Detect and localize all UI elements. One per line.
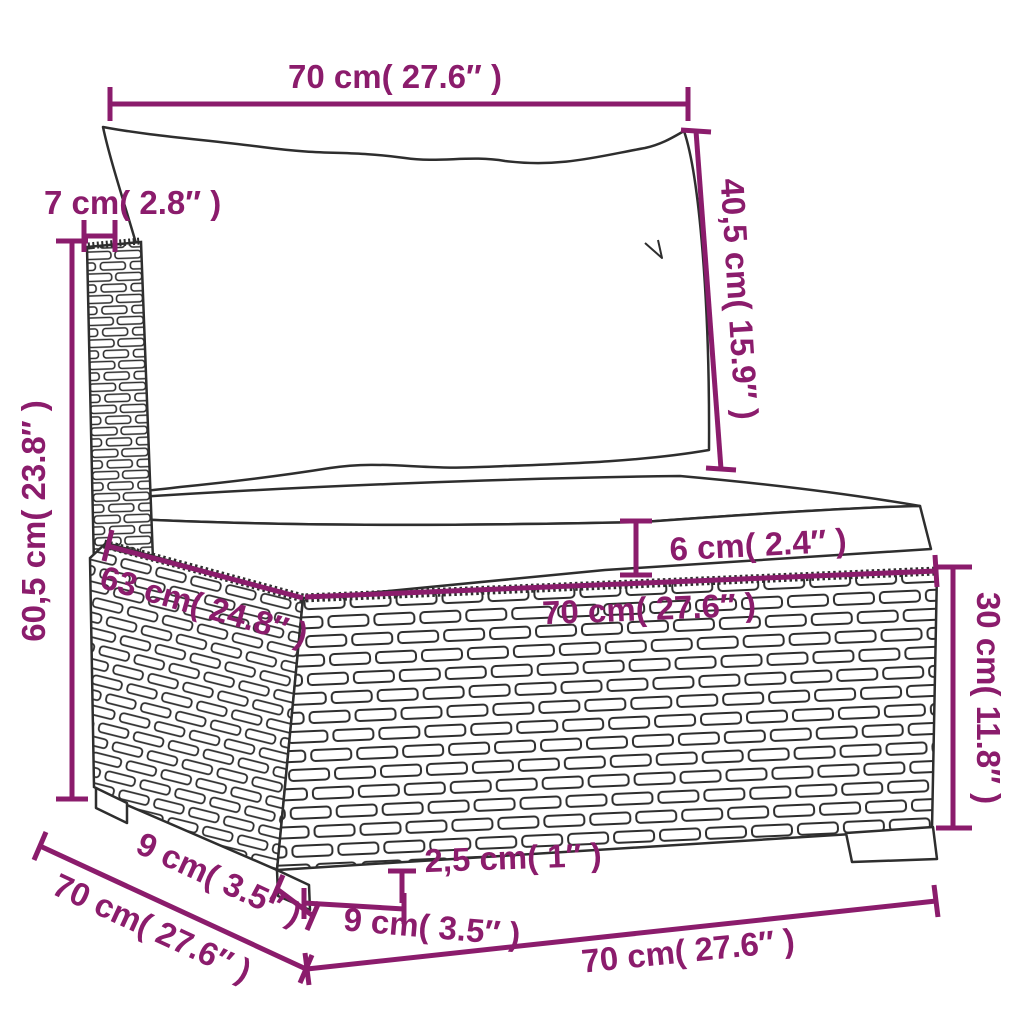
dimension-label: 7 cm( 2.8″ ) xyxy=(44,184,221,221)
dimension-label: 2,5 cm( 1″ ) xyxy=(424,836,602,879)
dimension-tick xyxy=(681,130,711,132)
dimension-label: 6 cm( 2.4″ ) xyxy=(669,521,848,567)
dimension-label: 70 cm( 27.6″ ) xyxy=(288,58,502,95)
dimension-tick xyxy=(935,555,937,587)
dimension-tick xyxy=(706,468,736,470)
back-cushion xyxy=(103,127,709,491)
furniture-drawing xyxy=(87,127,937,910)
furniture-dimension-diagram: 70 cm( 27.6″ ) 40,5 cm( 15.9″ ) 7 cm( 2.… xyxy=(0,0,1024,1024)
dimension-label: 40,5 cm( 15.9″ ) xyxy=(714,177,766,420)
back-post xyxy=(87,242,153,566)
dimension-cushion-top-width: 70 cm( 27.6″ ) xyxy=(110,58,688,121)
dimension-overall-height: 60,5 cm( 23.8″ ) xyxy=(15,241,88,799)
dimension-label: 9 cm( 3.5″ ) xyxy=(342,900,522,952)
dimension-base-height: 30 cm( 11.8″ ) xyxy=(936,567,1007,828)
leg-rear-right xyxy=(846,827,937,862)
dimension-tick xyxy=(934,885,938,917)
dimension-label: 30 cm( 11.8″ ) xyxy=(970,592,1007,804)
dimension-label: 60,5 cm( 23.8″ ) xyxy=(15,400,52,641)
dimension-leg-width: 9 cm( 3.5″ ) xyxy=(304,888,522,953)
